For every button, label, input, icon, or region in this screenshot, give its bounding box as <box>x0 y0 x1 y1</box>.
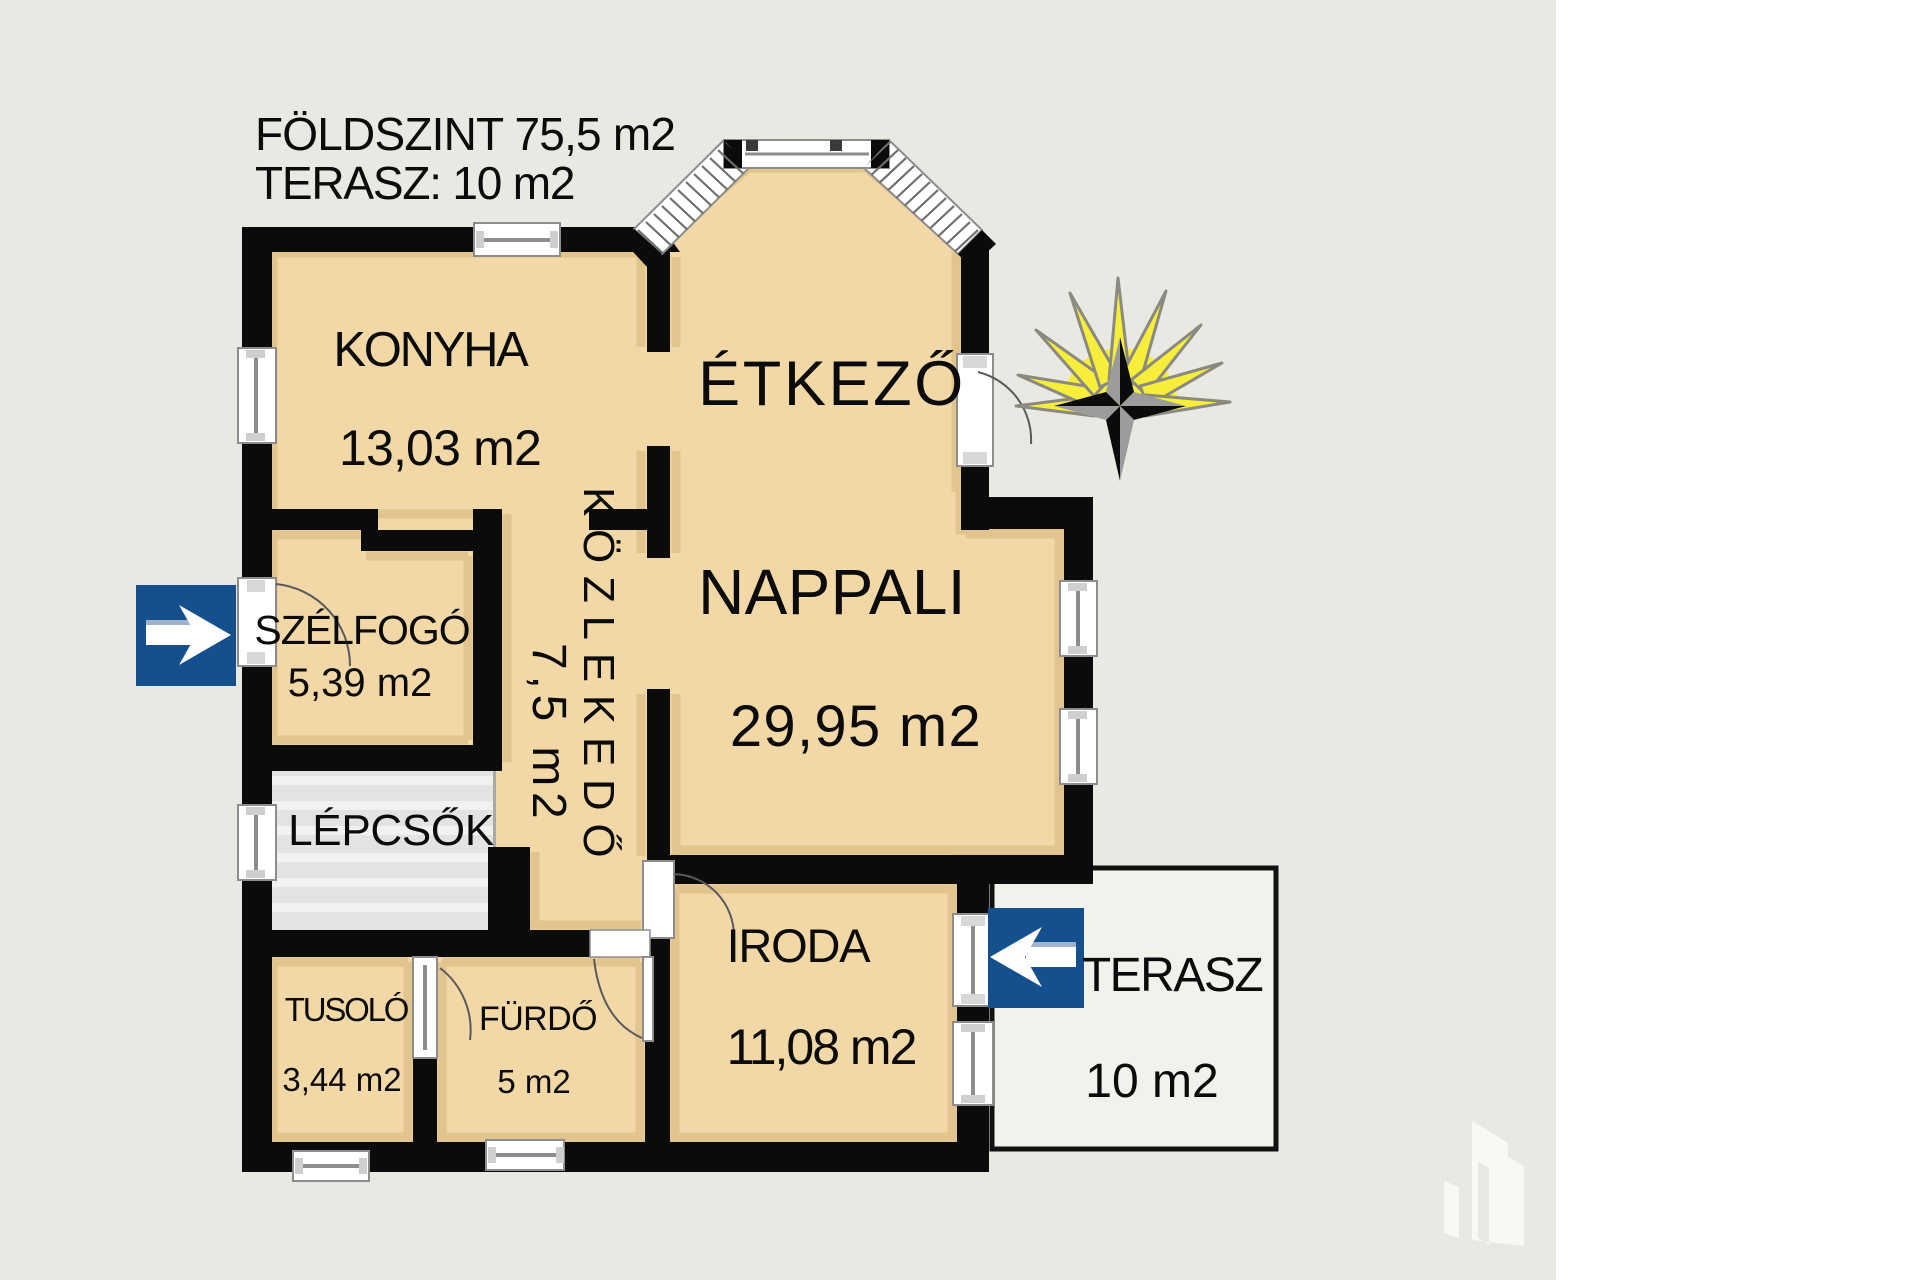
svg-text:NAPPALI: NAPPALI <box>698 556 966 628</box>
svg-text:TERASZ: TERASZ <box>1082 949 1263 1002</box>
svg-text:FÜRDŐ: FÜRDŐ <box>479 1000 597 1038</box>
svg-text:29,95 m2: 29,95 m2 <box>730 694 982 759</box>
svg-text:SZÉLFOGÓ: SZÉLFOGÓ <box>254 607 469 653</box>
svg-text:11,08 m2: 11,08 m2 <box>727 1019 916 1075</box>
svg-text:10 m2: 10 m2 <box>1085 1055 1218 1108</box>
svg-text:3,44 m2: 3,44 m2 <box>282 1061 401 1098</box>
svg-text:TUSOLÓ: TUSOLÓ <box>285 991 409 1028</box>
svg-text:TERASZ: 10 m2: TERASZ: 10 m2 <box>255 157 574 209</box>
svg-text:7,5 m2: 7,5 m2 <box>522 643 575 825</box>
svg-text:IRODA: IRODA <box>727 919 872 972</box>
svg-text:13,03 m2: 13,03 m2 <box>339 420 541 476</box>
svg-text:5,39 m2: 5,39 m2 <box>288 661 433 705</box>
svg-text:LÉPCSŐK: LÉPCSŐK <box>288 806 494 855</box>
svg-text:ÉTKEZŐ: ÉTKEZŐ <box>698 349 966 419</box>
svg-text:FÖLDSZINT 75,5 m2: FÖLDSZINT 75,5 m2 <box>255 108 675 160</box>
svg-text:5 m2: 5 m2 <box>497 1063 570 1100</box>
svg-text:KÖZLEKEDŐ: KÖZLEKEDŐ <box>574 487 623 870</box>
svg-text:KONYHA: KONYHA <box>333 323 529 377</box>
